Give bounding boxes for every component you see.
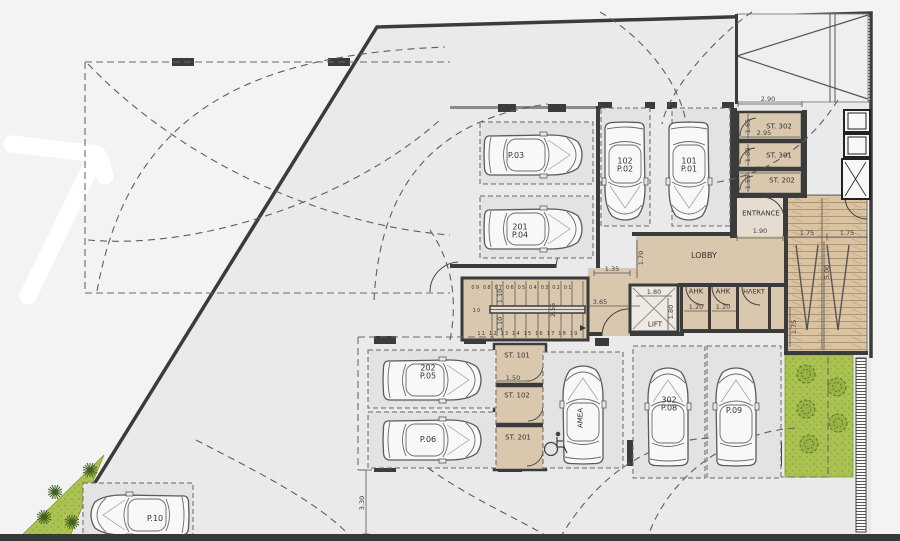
utility-meter-boxes xyxy=(842,110,870,199)
car-p04 xyxy=(484,206,582,252)
fence-strip-bottom-right xyxy=(856,358,866,532)
dim-180-lift-h: 1.80 xyxy=(667,305,675,319)
dim-180-st: 1.80 xyxy=(744,148,752,162)
dim-180-lift-w: 1.80 xyxy=(647,288,661,296)
stair-landing-number: 10 xyxy=(473,308,482,314)
dim-330: 3.30 xyxy=(358,496,366,510)
room-label-lift: LIFT xyxy=(648,321,662,328)
stair-step-numbers-upper: 09 08 07 06 05 04 03 02 01 xyxy=(471,285,572,291)
dim-365: 3.65 xyxy=(593,298,607,306)
car-p08 xyxy=(645,368,691,466)
dim-175a: 1.75 xyxy=(800,229,814,237)
parking-label-p02: 102P.02 xyxy=(617,158,633,175)
landscape-rear-garden xyxy=(785,355,853,477)
room-label-lobby: LOBBY xyxy=(691,252,717,260)
dim-500: 5.00 xyxy=(823,265,831,279)
dim-120b: 1.20 xyxy=(716,303,730,311)
parking-label-p06: P.06 xyxy=(420,436,436,444)
dim-110b: 1.10 xyxy=(496,317,504,331)
car-p10 xyxy=(91,492,189,538)
room-label-entrance: ENTRANCE xyxy=(742,210,780,217)
spot-number: P.01 xyxy=(681,166,697,174)
spot-number: P.04 xyxy=(512,232,528,240)
dim-290: 2.90 xyxy=(761,95,775,103)
floor-plan-canvas: LOBBY ENTRANCE LIFT AHK AHK ΗΛΕΚΤ ST. 30… xyxy=(0,0,900,541)
car-p03 xyxy=(484,132,582,178)
floor-plan-drawing xyxy=(0,0,900,541)
dim-255: 2.55 xyxy=(549,303,557,317)
street-edge xyxy=(0,534,900,541)
ramp-upper-zone xyxy=(735,14,868,104)
dim-110a: 1.10 xyxy=(496,289,504,303)
dim-175c: 1.75 xyxy=(790,320,798,334)
dim-165: 1.65 xyxy=(744,119,752,133)
room-label-st102: ST. 102 xyxy=(504,392,530,399)
parking-label-p01: 101P.01 xyxy=(681,158,697,175)
parking-label-p08: 302P.08 xyxy=(661,397,677,414)
spot-number: P.08 xyxy=(661,405,677,413)
dim-170: 1.70 xyxy=(637,251,645,265)
dim-295a: 2.95 xyxy=(757,129,771,137)
stair-step-numbers-lower: 11 12 13 14 15 16 17 18 19 xyxy=(477,331,578,337)
dim-190: 1.90 xyxy=(753,227,767,235)
room-label-st201: ST. 201 xyxy=(505,434,531,441)
room-label-st101: ST. 101 xyxy=(504,352,530,359)
room-label-st202: ST. 202 xyxy=(769,177,795,184)
dim-295b: 2.95 xyxy=(757,165,771,173)
dim-135: 1.35 xyxy=(605,265,619,273)
parking-label-p04: 201P.04 xyxy=(512,224,528,241)
parking-label-amea: AMEA xyxy=(577,408,584,428)
parking-label-p10: P.10 xyxy=(147,515,163,523)
room-label-ahk-left: AHK xyxy=(689,288,704,295)
dim-155: 1.55 xyxy=(744,175,752,189)
room-label-ahk-right: AHK xyxy=(716,288,731,295)
storage-rooms-lower xyxy=(494,344,546,470)
parking-label-p05: 202P.05 xyxy=(420,365,436,382)
spot-number: P.05 xyxy=(420,373,436,381)
room-label-electrical: ΗΛΕΚΤ xyxy=(743,289,765,296)
dim-120a: 1.20 xyxy=(689,303,703,311)
dim-175b: 1.75 xyxy=(840,229,854,237)
room-label-st301: ST. 301 xyxy=(766,152,792,159)
parking-label-p09: P.09 xyxy=(726,407,742,415)
spot-number: P.02 xyxy=(617,166,633,174)
car-p09 xyxy=(713,368,759,466)
dim-150: 1.50 xyxy=(506,374,520,382)
parking-label-p03: P.03 xyxy=(508,152,524,160)
